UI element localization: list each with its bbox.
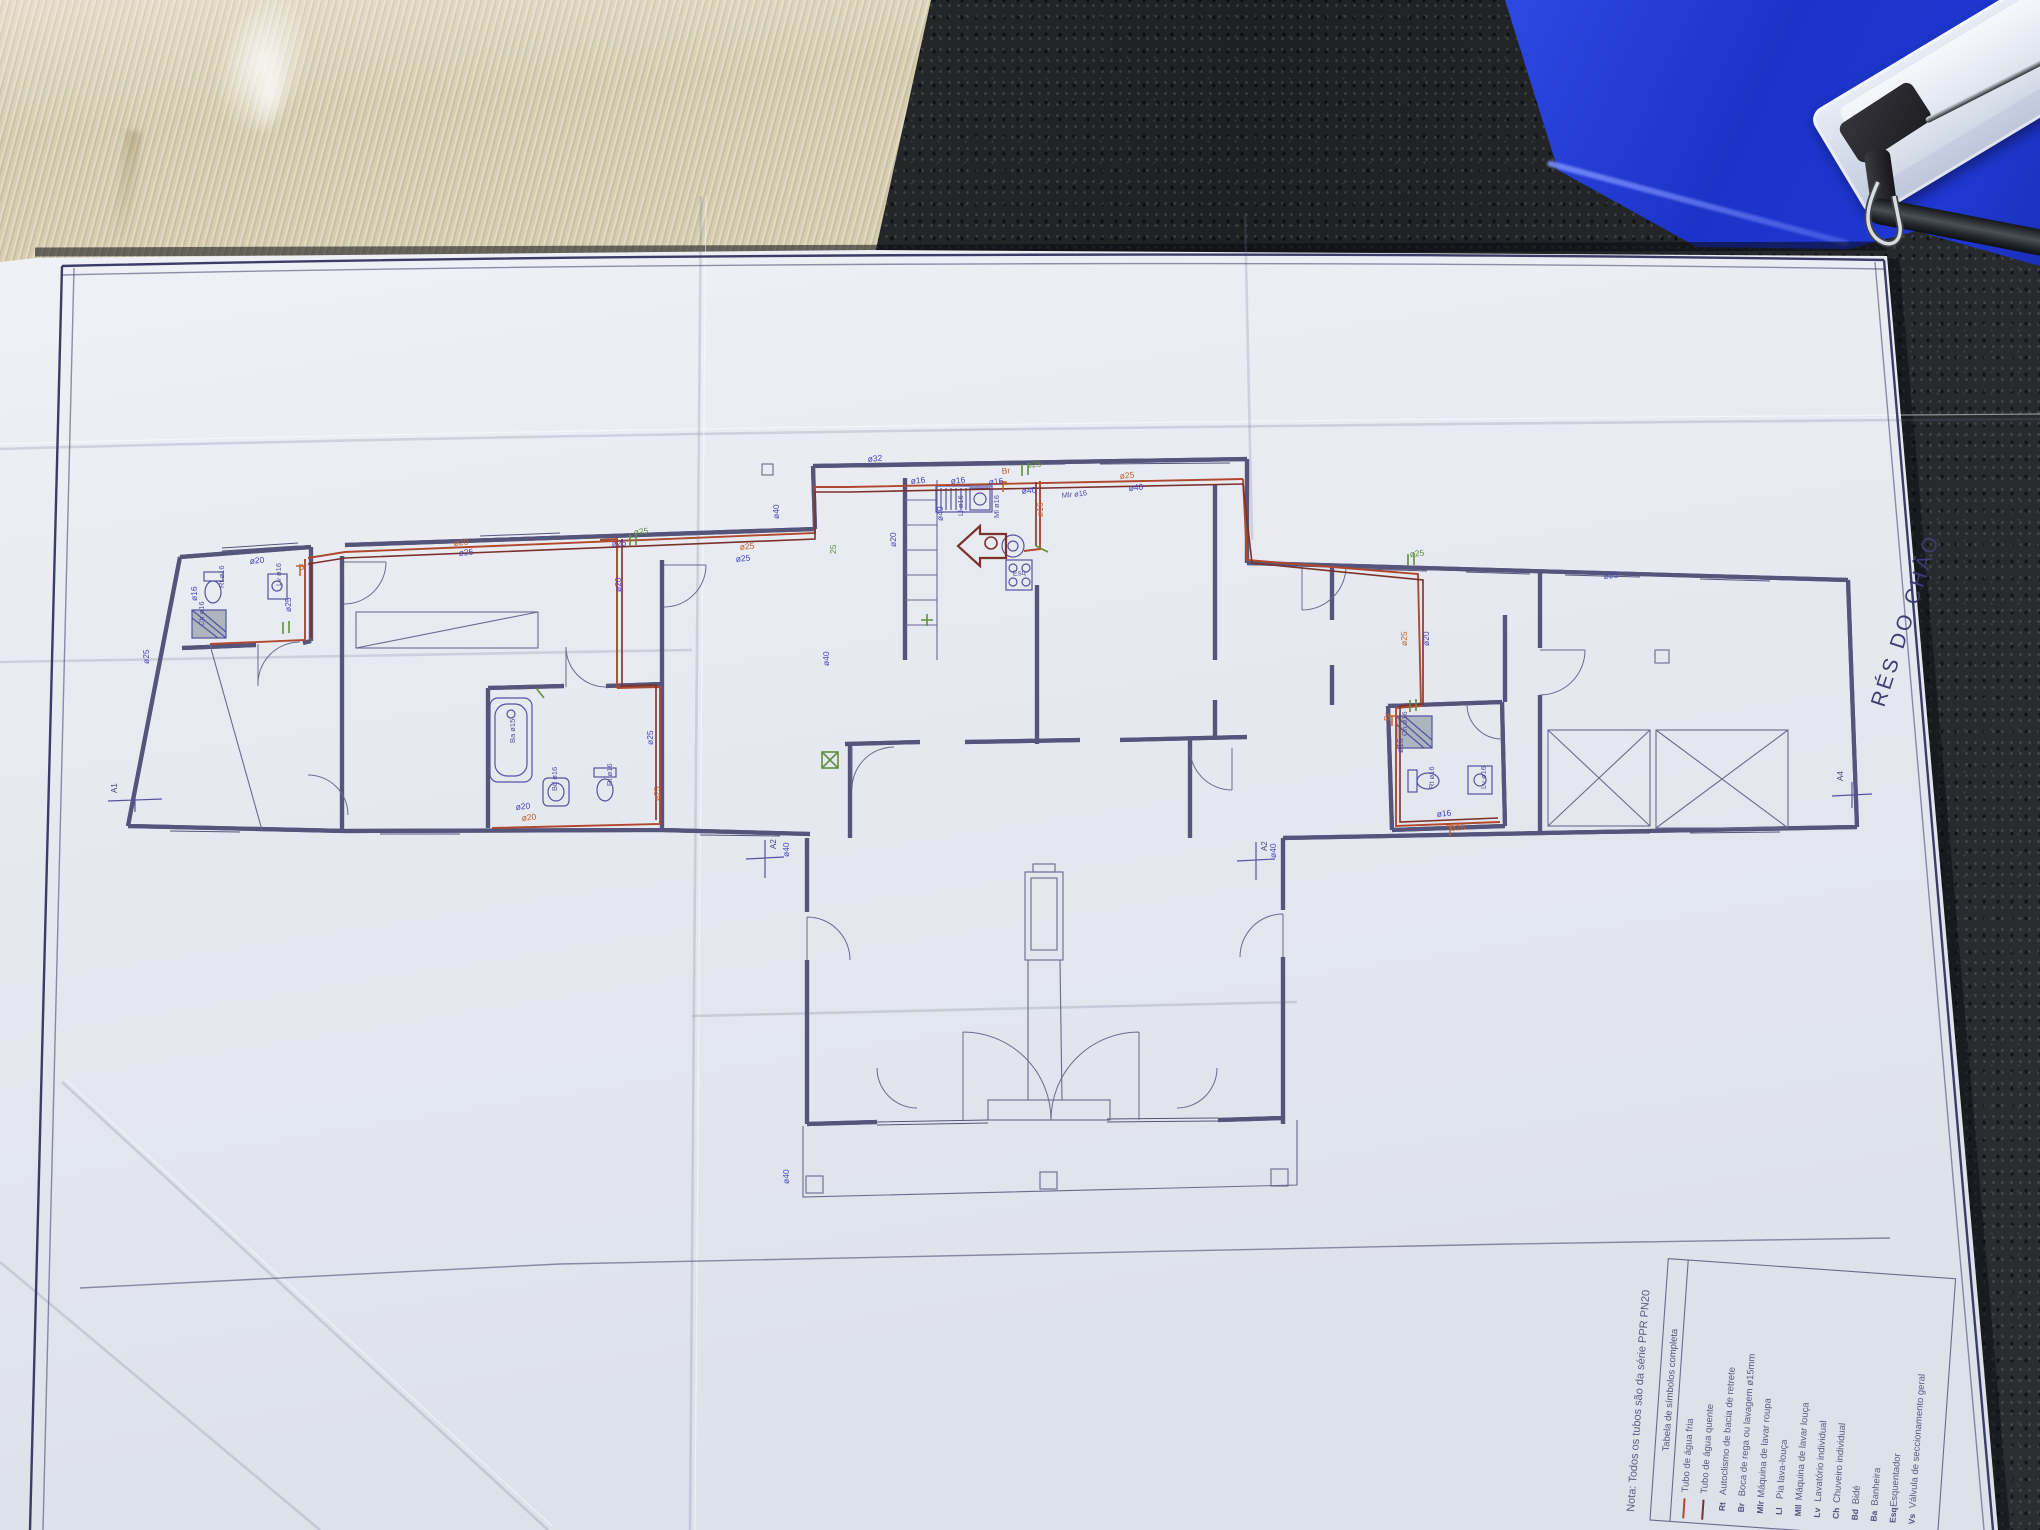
photo-of-floor-plan: ø20ø16ø25ø25ø25ø25ø20ø25ø20ø40ø40ø16ø16ø… bbox=[0, 0, 2040, 1530]
legend-symbol: Br bbox=[1736, 1502, 1747, 1513]
pipe-label: ø20 bbox=[453, 536, 469, 548]
pipe-label: ø16 bbox=[988, 475, 1004, 487]
fixture-label: Lv ø16 bbox=[1479, 766, 1488, 789]
pipe-label: ø25 bbox=[1603, 569, 1619, 581]
pipe-label: ø25 bbox=[652, 786, 662, 801]
pipe-label: ø32 bbox=[867, 452, 883, 464]
fixture-label: Rt ø16 bbox=[1427, 766, 1436, 789]
pipe-label: ø25 bbox=[611, 537, 627, 549]
pipe-label: ø25 bbox=[458, 546, 474, 558]
pipe-label: ø25 bbox=[1119, 469, 1135, 481]
pipe-label: ø20 bbox=[888, 532, 898, 547]
pipe-label: ø40 bbox=[1128, 481, 1144, 493]
pipe-label: ø20 bbox=[249, 554, 265, 566]
fixture-label: Ch ø16 bbox=[1400, 711, 1409, 736]
legend-symbol: Mll bbox=[1793, 1504, 1804, 1516]
legend-symbol: Ll bbox=[1774, 1507, 1785, 1515]
pipe-label: ø25 bbox=[141, 649, 151, 664]
pipe-label: ø25 bbox=[739, 540, 755, 552]
pipe-label: ø40 bbox=[781, 1169, 791, 1184]
pipe-label: ø25 bbox=[1409, 547, 1425, 559]
pipe-label: ø40 bbox=[781, 842, 791, 857]
pipe-label: ø16 bbox=[189, 586, 199, 601]
legend-symbol: Vs bbox=[1906, 1513, 1917, 1524]
pipe-label: ø16 bbox=[910, 474, 926, 486]
pipe-label: ø16 bbox=[1035, 502, 1045, 517]
legend-pipe-sample bbox=[1683, 1498, 1684, 1518]
pipe-label: Br bbox=[1001, 465, 1011, 476]
pipe-label: ø25 bbox=[1399, 631, 1409, 646]
fixture-label: Ch ø16 bbox=[197, 601, 206, 626]
pipe-label: 25 bbox=[828, 544, 838, 554]
vent-label: A1 bbox=[110, 783, 119, 793]
legend-symbol: Esq bbox=[1887, 1507, 1898, 1523]
vent-label: A2 bbox=[769, 839, 778, 849]
fixture-label: Ll ø16 bbox=[956, 495, 965, 516]
pipe-label: Br bbox=[298, 561, 308, 572]
fixture-label: Esq bbox=[1012, 568, 1026, 578]
fixture-label: Ml ø16 bbox=[992, 495, 1001, 518]
pipe-label: ø16 bbox=[1450, 821, 1466, 833]
pipe-label: ø40 bbox=[1021, 484, 1037, 496]
pipe-label: ø25 bbox=[283, 597, 293, 612]
legend-symbol: Rt bbox=[1717, 1502, 1728, 1512]
pipe-label: ø16 bbox=[1436, 807, 1452, 819]
legend-symbol: Mlr bbox=[1755, 1500, 1766, 1514]
legend-pipe-sample bbox=[1702, 1500, 1703, 1520]
vent-label: A4 bbox=[1836, 771, 1845, 781]
pipe-label: ø16 bbox=[1395, 738, 1405, 753]
floor-plan-sheet: ø20ø16ø25ø25ø25ø25ø20ø25ø20ø40ø40ø16ø16ø… bbox=[0, 0, 2040, 1530]
fixture-label: Rt ø16 bbox=[605, 763, 614, 786]
fixture-label: Rt ø16 bbox=[217, 565, 226, 588]
fixture-label: Lv ø16 bbox=[274, 563, 283, 586]
legend-symbol: Ch bbox=[1831, 1507, 1842, 1519]
pipe-label: ø25 bbox=[1026, 458, 1042, 470]
pipe-label: ø40 bbox=[1268, 843, 1278, 858]
pipe-label: ø40 bbox=[821, 651, 831, 666]
legend-symbol: Ba bbox=[1868, 1510, 1879, 1522]
pipe-label: ø16 bbox=[950, 474, 966, 486]
pipe-label: ø25 bbox=[645, 730, 655, 745]
pipe-label: ø20 bbox=[521, 811, 537, 823]
vent-label: A2 bbox=[1260, 841, 1269, 851]
pipe-label: ø40 bbox=[771, 504, 781, 519]
legend-symbol: Bd bbox=[1849, 1509, 1860, 1521]
fixture-label: Ba ø15 bbox=[508, 719, 517, 743]
legend-label: Bidé bbox=[1851, 1485, 1863, 1505]
pipe-label: ø20 bbox=[515, 800, 531, 812]
pipe-label: ø40 bbox=[935, 506, 945, 521]
pipe-label: ø20 bbox=[1421, 631, 1431, 646]
fixture-label: Bd ø16 bbox=[550, 767, 559, 791]
legend-symbol: Lv bbox=[1812, 1507, 1823, 1518]
pipe-label: ø25 bbox=[633, 525, 649, 537]
pipe-label: ø25 bbox=[735, 552, 751, 564]
pipe-label: Br bbox=[1382, 712, 1392, 721]
pipe-label: ø20 bbox=[613, 577, 623, 592]
